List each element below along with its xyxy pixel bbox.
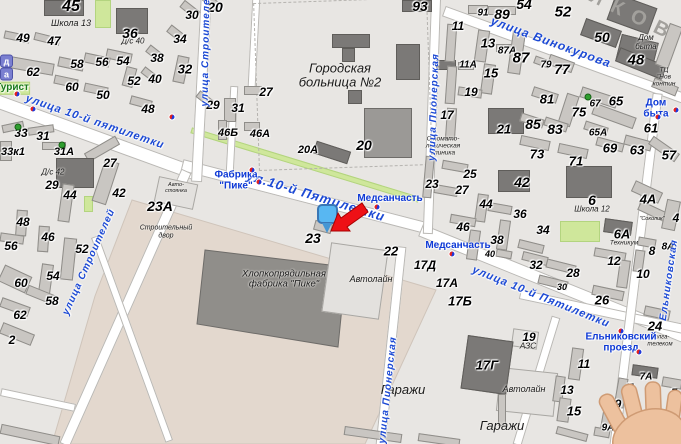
transit-stop-icon[interactable] (673, 107, 680, 114)
building-number: 46 (456, 220, 469, 234)
building-number: 10 (636, 267, 649, 281)
area-label: Школа 13 (51, 19, 91, 29)
building-number: 67 (589, 99, 600, 110)
building-number: 33к1 (1, 146, 25, 158)
building (445, 66, 458, 105)
area-label: Хлопкопрядильная фабрика "Пике" (242, 270, 326, 291)
building-number: 56 (4, 239, 17, 253)
building-number: 85 (525, 116, 541, 132)
building (556, 426, 589, 442)
building-number: 91 (477, 8, 488, 19)
building-number: 81 (540, 92, 554, 107)
transit-stop-icon[interactable] (14, 91, 21, 98)
transit-stop-icon[interactable] (249, 167, 256, 174)
building-number: 34 (536, 223, 549, 237)
building-number: 52 (127, 74, 140, 88)
selected-building-marker[interactable] (317, 204, 338, 224)
poi-label[interactable]: Фабрика "Пике" (214, 171, 257, 192)
poi-label[interactable]: Ельниковский проезд (585, 333, 656, 354)
building-number: 47 (47, 34, 60, 48)
building-number: 25 (463, 167, 476, 181)
building-number: 58 (45, 294, 58, 308)
selected-building-marker-tail (322, 223, 332, 233)
building-number: 13 (560, 383, 573, 397)
road-segment (91, 235, 173, 443)
building-number: 65А (589, 128, 607, 139)
building (0, 424, 60, 444)
building-number: 44 (479, 197, 492, 211)
building-number: 27 (103, 156, 116, 170)
area-label: Автолайн (503, 385, 546, 395)
green-area (95, 0, 111, 28)
building-number: 46А (250, 128, 270, 140)
building (654, 418, 681, 444)
building-number: 48 (16, 215, 29, 229)
building-number: 77 (554, 61, 570, 77)
building-number: 17Д (414, 258, 436, 272)
area-label: Городская больница №2 (299, 62, 382, 91)
building-number: 9А (602, 423, 615, 434)
area-label: Автолайн (350, 275, 393, 285)
transit-stop-icon[interactable] (256, 179, 263, 186)
building-number: 44 (63, 188, 76, 202)
building-number: 71 (569, 154, 583, 169)
building-number: 50 (96, 88, 109, 102)
building-number: 23 (305, 230, 321, 246)
building-number: 38 (490, 233, 503, 247)
poi-badge-icon[interactable]: а (0, 68, 13, 81)
building-number: 9 (615, 397, 622, 411)
building-number: 31 (36, 129, 49, 143)
building-number: 13 (481, 36, 495, 51)
building-number: 11А (459, 60, 477, 71)
building-number: 48 (141, 102, 154, 116)
building-number: 62 (26, 65, 39, 79)
poi-green-icon[interactable] (59, 142, 66, 149)
poi-green-icon[interactable] (585, 94, 592, 101)
building-number: 30 (185, 8, 198, 22)
building-number: 87 (513, 50, 530, 67)
building-number: 42 (112, 186, 125, 200)
building-number: 34 (173, 32, 186, 46)
transit-stop-icon[interactable] (169, 114, 176, 121)
building-number: 69 (603, 141, 617, 156)
building-number: 93 (412, 0, 428, 14)
building-number: 27 (455, 183, 468, 197)
transit-stop-icon[interactable] (374, 204, 381, 211)
building-number: 7 (627, 381, 634, 395)
building-number: 49 (16, 31, 29, 45)
building-number: 60 (65, 80, 78, 94)
area-label: Гаражи (480, 419, 525, 433)
city-map-canvas[interactable]: 4549473630203438324052545658626050482933… (0, 0, 681, 444)
building-number: 5 (671, 386, 678, 400)
building-number: 60 (14, 276, 27, 290)
transit-stop-icon[interactable] (30, 106, 37, 113)
building-number: 4 (673, 211, 680, 225)
building-number: 36 (513, 207, 526, 221)
building-number: 79 (540, 60, 551, 71)
building-number: 50 (594, 29, 610, 45)
building-number: 62 (13, 308, 26, 322)
building-number: 27 (259, 85, 272, 99)
factory-zone (52, 200, 436, 444)
building-number: 7А (640, 372, 653, 383)
building-number: 8 (649, 244, 656, 258)
building-number: 36 (122, 25, 138, 41)
building-number: 4А (640, 192, 657, 207)
building-number: 19 (464, 85, 477, 99)
building-number: 28 (566, 266, 579, 280)
building-number: 11 (578, 357, 590, 371)
area-label: "Соколик" (639, 216, 664, 222)
building-number: 61 (644, 121, 658, 136)
area-label: Д/с 42 (42, 169, 65, 178)
building-number: 15 (484, 66, 498, 81)
street-name-label: улица Строителей (199, 0, 212, 107)
building-number: 23А (147, 198, 173, 214)
area-label: Строительный двор (140, 224, 193, 239)
building-number: 17Г (476, 358, 498, 373)
building-number: 40 (148, 72, 161, 86)
building-number: 23 (425, 177, 438, 191)
poi-badge-icon[interactable]: д (0, 55, 13, 68)
building-number: 73 (530, 147, 544, 162)
building-number: 29 (45, 178, 58, 192)
building-number: 45 (62, 0, 80, 16)
building-number: 21 (497, 122, 511, 137)
building-number: 2 (9, 333, 16, 347)
building-number: 17А (436, 276, 458, 290)
building-number: 57 (662, 148, 676, 163)
building-number: 54 (116, 54, 129, 68)
building (348, 90, 362, 104)
transit-stop-icon[interactable] (618, 328, 625, 335)
building (517, 239, 544, 254)
building-number: 83 (547, 121, 563, 137)
building-number: 20 (356, 137, 372, 153)
poi-green-icon[interactable] (15, 124, 22, 131)
area-label: Авто- стоянка (165, 182, 187, 194)
building-number: 32 (529, 258, 542, 272)
building-number: 22 (384, 244, 398, 259)
building-number: 6А (614, 227, 631, 242)
building-number: 52 (555, 4, 572, 21)
building (396, 44, 420, 80)
building-number: 6 (588, 192, 596, 208)
building-number: 46Б (218, 127, 238, 139)
building (418, 433, 461, 444)
building-number: 38 (150, 51, 163, 65)
building-number: 12 (607, 254, 620, 268)
building-number: 20А (298, 144, 318, 156)
building-number: 15 (567, 404, 581, 419)
building-number: 17 (440, 108, 453, 122)
building (344, 426, 403, 443)
building-number: 11 (452, 19, 464, 33)
area-label: ТЦ "Нов контин (653, 66, 676, 87)
poi-label[interactable]: Медсанчасть (425, 241, 490, 252)
transit-stop-icon[interactable] (655, 114, 662, 121)
building-number: 54 (46, 269, 59, 283)
transit-stop-icon[interactable] (636, 349, 643, 356)
building-number: 31 (231, 101, 244, 115)
building-number: 56 (95, 55, 108, 69)
poi-label[interactable]: Медсанчасть (357, 194, 422, 205)
building-number: 26 (595, 293, 609, 308)
building-number: 54 (516, 0, 532, 12)
building (332, 34, 370, 48)
green-area (560, 221, 600, 242)
building-number: 32 (178, 62, 192, 77)
road-segment (0, 388, 76, 412)
building-number: 17Б (448, 294, 472, 309)
transit-stop-icon[interactable] (449, 251, 456, 258)
building-number: 58 (70, 57, 83, 71)
building-number: 75 (572, 105, 586, 120)
building-number: 65 (609, 94, 623, 109)
building-number: 30 (557, 282, 567, 292)
building-number: 42 (514, 174, 530, 190)
building-number: 48 (628, 52, 645, 69)
building-number: 46 (41, 230, 54, 244)
building-number: 63 (630, 143, 644, 158)
building-number: 19 (522, 330, 535, 344)
building (0, 322, 35, 346)
